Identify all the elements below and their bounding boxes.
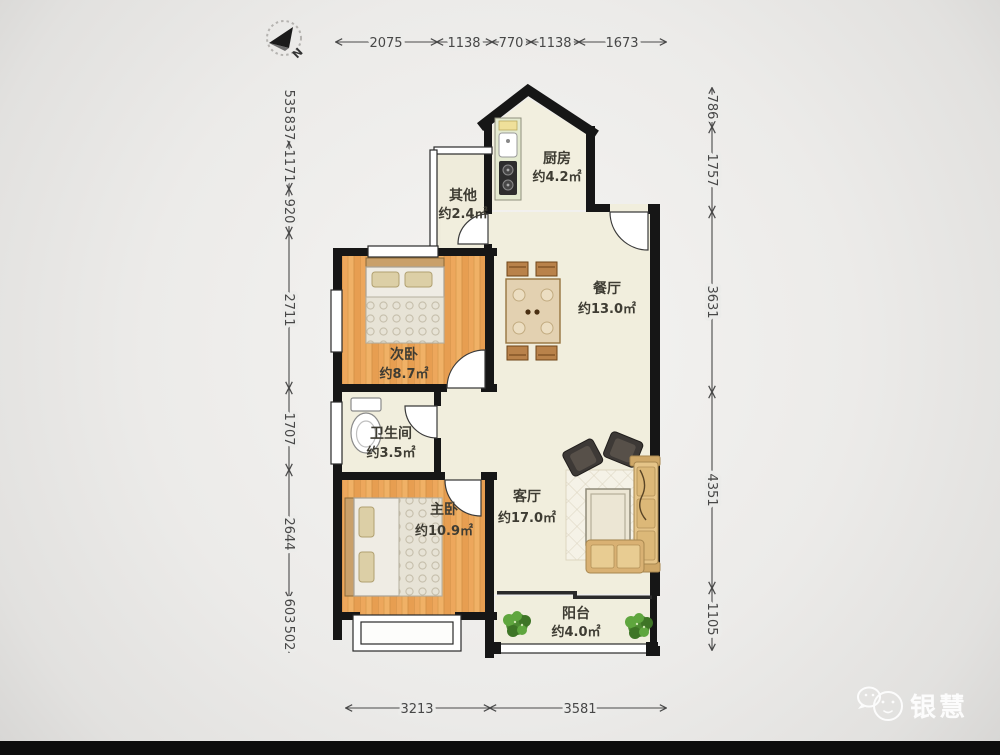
bottom-black-bar [0,741,1000,755]
svg-text:阳台: 阳台 [562,605,590,622]
compass-north-icon: N [267,21,306,61]
stove-icon [499,161,517,195]
dim-label: 1757 [704,153,719,186]
svg-text:其他: 其他 [449,187,477,204]
svg-text:厨房: 厨房 [543,150,571,167]
dim-label: 1138 [538,36,571,51]
svg-text:约4.2㎡: 约4.2㎡ [532,169,581,185]
svg-text:约10.9㎡: 约10.9㎡ [415,523,473,539]
svg-text:客厅: 客厅 [512,488,541,505]
watermark: 银慧 [858,688,968,724]
dim-label: 770 [499,36,524,51]
svg-text:主卧: 主卧 [430,501,458,518]
compass-label: N [290,45,306,61]
dim-label: 4351 [704,473,719,506]
dim-label: 2075 [369,36,402,51]
window [368,246,438,257]
bay-window [353,615,461,651]
dim-label: 502 [281,626,296,651]
dim-label: 2711 [281,293,296,326]
svg-text:约2.4㎡: 约2.4㎡ [438,206,487,222]
svg-text:约13.0㎡: 约13.0㎡ [578,301,636,317]
window [430,150,437,252]
dim-label: 3581 [563,702,596,717]
dim-label: 603 [281,599,296,624]
kitchen-counter-icon [495,118,521,200]
svg-text:卫生间: 卫生间 [370,425,412,442]
dim-label: 786 [704,95,719,120]
window [434,147,492,154]
floorplan-screenshot: N [0,0,1000,755]
svg-text:餐厅: 餐厅 [592,280,621,297]
dim-label: 535 [281,90,296,115]
dim-label: 1138 [447,36,480,51]
svg-text:次卧: 次卧 [390,346,418,363]
dim-label: 3631 [704,285,719,318]
dimensions-bottom: 3213 3581 [346,702,666,717]
dim-label: 1105 [704,602,719,635]
coffee-table-icon [586,489,630,545]
dimensions-right: 786 1757 3631 4351 1105 [704,88,719,650]
window [331,290,342,352]
svg-text:约4.0㎡: 约4.0㎡ [551,624,600,640]
window [331,402,342,464]
svg-text:约17.0㎡: 约17.0㎡ [498,510,556,526]
loveseat-icon [586,540,644,573]
dim-label: 920 [281,199,296,224]
dim-label: 3213 [400,702,433,717]
balcony-window [489,642,658,654]
dimensions-top: 2075 1138 770 1138 1673 [336,36,666,51]
svg-text:约3.5㎡: 约3.5㎡ [366,445,415,461]
sink-icon [499,133,517,157]
dim-label: 2644 [281,517,296,550]
double-bed-icon [345,498,442,596]
dim-label: 1171 [281,149,296,182]
dimensions-left: 535 837 1171 920 2711 1707 2644 603 502 [281,90,296,652]
dim-label: 1707 [281,412,296,445]
dim-label: 1673 [605,36,638,51]
double-bed-icon [366,258,444,343]
floorplan-canvas: N [0,0,1000,755]
watermark-logo-icon [858,688,902,721]
watermark-text: 银慧 [910,693,968,723]
dim-label: 837 [281,116,296,141]
svg-text:约8.7㎡: 约8.7㎡ [379,366,428,382]
